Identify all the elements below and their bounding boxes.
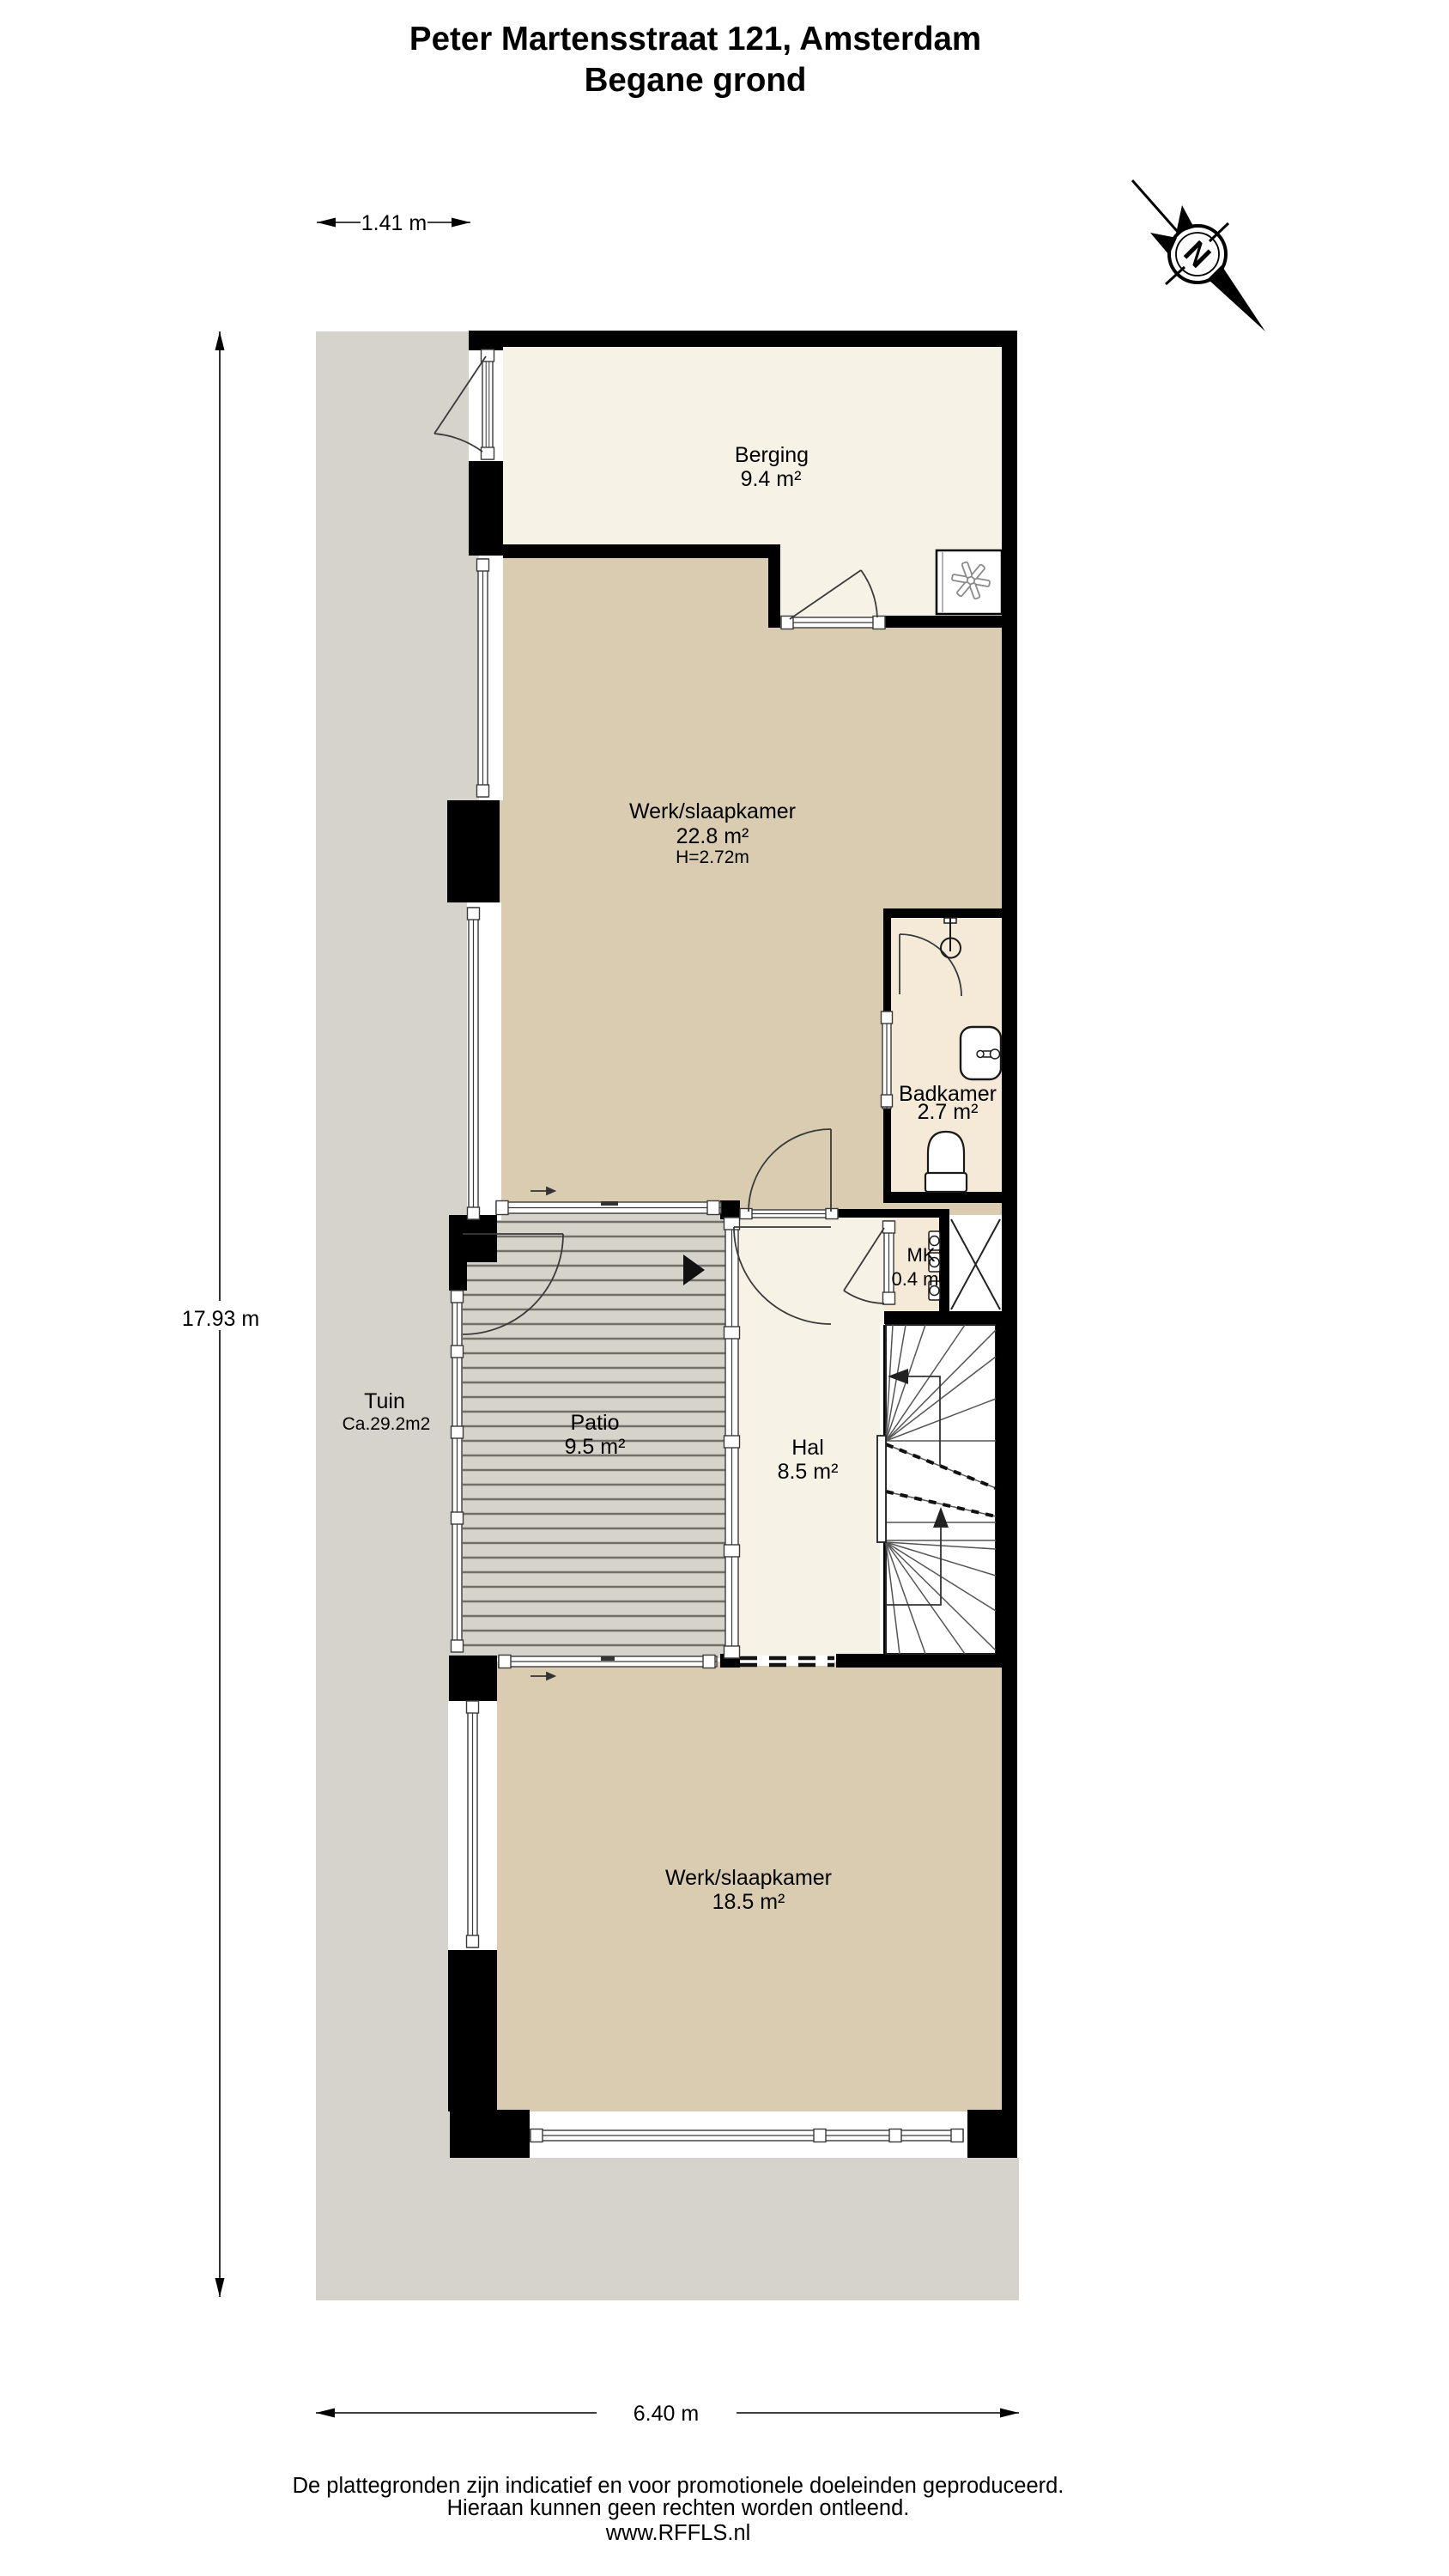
- svg-text:6.40 m: 6.40 m: [634, 2402, 699, 2426]
- svg-text:De plattegronden zijn indicati: De plattegronden zijn indicatief en voor…: [293, 2474, 1064, 2498]
- svg-text:Patio: Patio: [571, 1411, 620, 1435]
- svg-text:2.7 m²: 2.7 m²: [918, 1100, 979, 1124]
- svg-text:Ca.29.2m2: Ca.29.2m2: [343, 1414, 431, 1434]
- svg-text:Werk/slaapkamer: Werk/slaapkamer: [665, 1866, 832, 1890]
- svg-text:0.4 m: 0.4 m: [891, 1268, 938, 1290]
- svg-text:MK: MK: [907, 1244, 936, 1266]
- svg-text:Begane grond: Begane grond: [585, 62, 807, 99]
- svg-text:18.5 m²: 18.5 m²: [712, 1890, 785, 1914]
- svg-text:Werk/slaapkamer: Werk/slaapkamer: [629, 799, 796, 823]
- svg-text:17.93 m: 17.93 m: [182, 1307, 259, 1331]
- svg-text:22.8 m²: 22.8 m²: [676, 824, 749, 848]
- svg-text:9.5 m²: 9.5 m²: [565, 1435, 626, 1459]
- svg-text:9.4 m²: 9.4 m²: [741, 467, 802, 491]
- svg-text:Peter Martensstraat 121, Amste: Peter Martensstraat 121, Amsterdam: [409, 21, 981, 58]
- svg-text:H=2.72m: H=2.72m: [676, 848, 749, 867]
- svg-text:Hal: Hal: [791, 1436, 824, 1460]
- svg-text:Berging: Berging: [735, 443, 809, 467]
- svg-text:Tuin: Tuin: [364, 1389, 405, 1413]
- svg-text:Hieraan kunnen geen rechten wo: Hieraan kunnen geen rechten worden ontle…: [447, 2496, 910, 2520]
- svg-text:1.41 m: 1.41 m: [361, 211, 427, 235]
- svg-text:www.RFFLS.nl: www.RFFLS.nl: [605, 2521, 751, 2545]
- svg-text:8.5 m²: 8.5 m²: [778, 1460, 839, 1484]
